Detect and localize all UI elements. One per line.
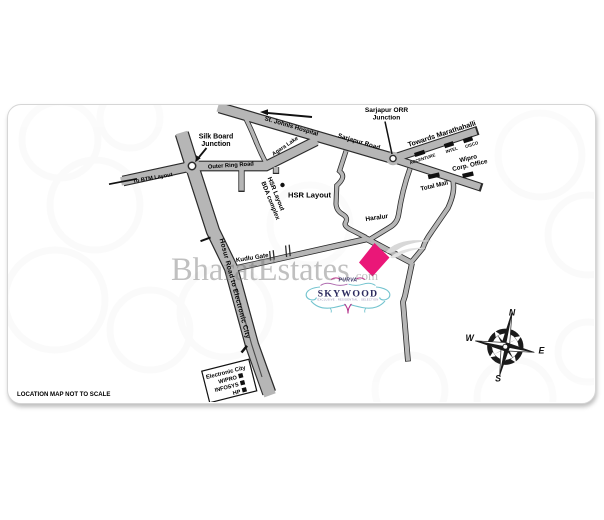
svg-text:Silk Board: Silk Board bbox=[199, 134, 234, 141]
svg-text:Sarjapur ORR: Sarjapur ORR bbox=[365, 107, 408, 114]
svg-text:S: S bbox=[495, 374, 501, 384]
svg-text:N: N bbox=[509, 308, 516, 318]
svg-text:Junction: Junction bbox=[201, 141, 230, 148]
svg-text:PURVA: PURVA bbox=[339, 277, 358, 283]
svg-text:Total Mall: Total Mall bbox=[420, 179, 449, 192]
svg-text:HSR Layout: HSR Layout bbox=[288, 191, 332, 200]
svg-text:EXCLUSIVE . RESIDENTIAL . SELE: EXCLUSIVE . RESIDENTIAL . SELECTION bbox=[318, 297, 379, 301]
svg-text:E: E bbox=[539, 346, 546, 356]
svg-text:LOCATION MAP NOT TO SCALE: LOCATION MAP NOT TO SCALE bbox=[17, 391, 110, 398]
svg-text:Junction: Junction bbox=[373, 114, 400, 121]
svg-text:W: W bbox=[466, 333, 475, 343]
svg-text:Haralur: Haralur bbox=[365, 213, 389, 223]
